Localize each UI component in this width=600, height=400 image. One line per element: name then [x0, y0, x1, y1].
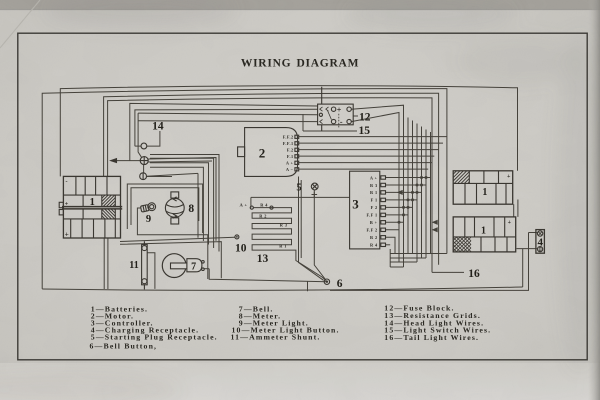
- svg-text:+: +: [507, 174, 511, 180]
- svg-text:+: +: [65, 230, 69, 238]
- svg-text:R 2: R 2: [370, 235, 378, 240]
- svg-text:R 3: R 3: [280, 222, 288, 227]
- svg-text:10: 10: [235, 242, 247, 254]
- svg-text:R 4: R 4: [370, 243, 378, 248]
- svg-text:WIRING DIAGRAM: WIRING DIAGRAM: [241, 57, 359, 69]
- svg-text:+: +: [65, 202, 69, 208]
- svg-text:R 2: R 2: [259, 214, 267, 219]
- svg-text:F.F 1: F.F 1: [367, 213, 378, 218]
- svg-text:A +: A +: [239, 203, 247, 208]
- svg-text:F 2: F 2: [371, 205, 378, 210]
- svg-text:16: 16: [468, 268, 480, 280]
- svg-text:R 1: R 1: [370, 190, 378, 195]
- svg-text:-: -: [340, 118, 343, 127]
- svg-text:4: 4: [538, 237, 544, 249]
- svg-text:F 1: F 1: [371, 198, 378, 203]
- svg-text:1: 1: [481, 226, 486, 237]
- svg-text:F.F 2: F.F 2: [367, 228, 378, 233]
- svg-text:R 4: R 4: [260, 202, 268, 207]
- svg-text:R 1: R 1: [279, 244, 287, 249]
- svg-text:-: -: [66, 179, 68, 185]
- svg-text:F.F.2: F.F.2: [283, 134, 294, 139]
- svg-text:13: 13: [257, 253, 269, 265]
- svg-text:F.2: F.2: [287, 147, 294, 152]
- svg-text:+: +: [337, 106, 342, 115]
- svg-text:14: 14: [152, 121, 164, 133]
- svg-text:6—Bell Button,: 6—Bell Button,: [90, 342, 158, 351]
- svg-text:11: 11: [129, 260, 138, 271]
- svg-text:11—Ammeter Shunt.: 11—Ammeter Shunt.: [231, 332, 321, 341]
- svg-text:B +: B +: [370, 220, 378, 225]
- svg-text:2: 2: [259, 146, 266, 161]
- svg-text:+: +: [508, 220, 512, 226]
- svg-text:6: 6: [337, 278, 343, 290]
- svg-text:A −: A −: [286, 167, 294, 172]
- svg-text:1: 1: [90, 197, 95, 208]
- svg-text:F.1: F.1: [287, 154, 294, 159]
- svg-text:15: 15: [359, 125, 371, 137]
- svg-text:1: 1: [482, 187, 487, 198]
- svg-text:5: 5: [296, 183, 301, 194]
- svg-text:F.F.1: F.F.1: [283, 141, 294, 146]
- svg-text:16—Tail Light Wires.: 16—Tail Light Wires.: [384, 333, 479, 342]
- svg-text:7: 7: [191, 262, 196, 273]
- svg-text:9: 9: [146, 214, 151, 225]
- svg-text:5—Starting Plug Receptacle.: 5—Starting Plug Receptacle.: [91, 332, 218, 341]
- svg-text:8: 8: [188, 203, 194, 215]
- svg-text:A +: A +: [286, 160, 294, 165]
- svg-text:3: 3: [352, 197, 359, 212]
- svg-text:12: 12: [359, 112, 371, 124]
- svg-text:R 3: R 3: [370, 183, 378, 188]
- svg-text:A +: A +: [370, 175, 378, 180]
